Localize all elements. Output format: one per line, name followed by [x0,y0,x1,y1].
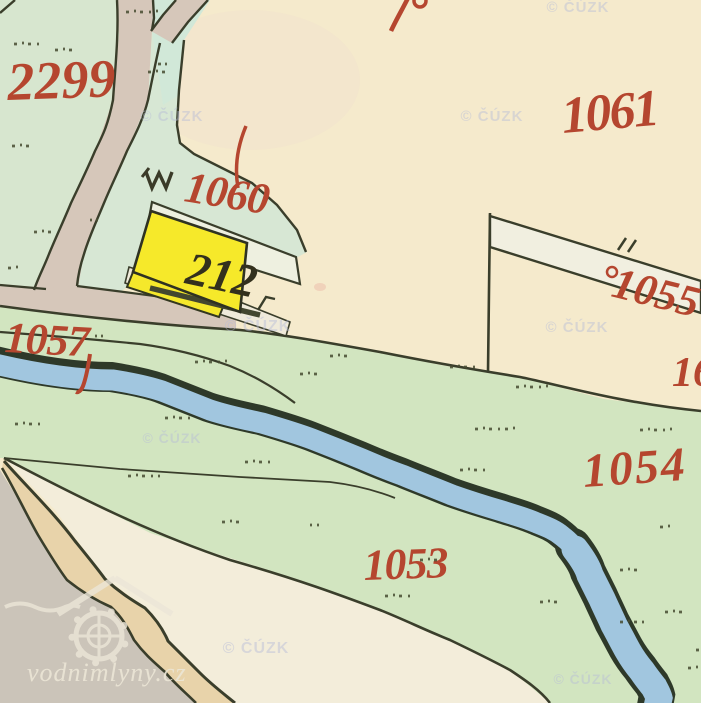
svg-text:© ČÚZK: © ČÚZK [547,0,610,16]
svg-text:1054: 1054 [581,438,688,498]
svg-text:© ČÚZK: © ČÚZK [142,429,201,446]
svg-text:1057: 1057 [3,313,92,366]
svg-text:© ČÚZK: © ČÚZK [141,107,204,125]
svg-text:© ČÚZK: © ČÚZK [546,318,609,336]
svg-text:1053: 1053 [363,538,449,590]
svg-text:vodnimlyny.cz: vodnimlyny.cz [27,658,187,687]
svg-text:1061: 1061 [559,80,660,145]
svg-text:2299: 2299 [5,48,116,112]
svg-text:16: 16 [672,350,701,396]
svg-text:© ČÚZK: © ČÚZK [225,316,292,335]
svg-text:© ČÚZK: © ČÚZK [553,670,612,687]
svg-text:© ČÚZK: © ČÚZK [223,638,290,657]
svg-text:© ČÚZK: © ČÚZK [461,107,524,125]
